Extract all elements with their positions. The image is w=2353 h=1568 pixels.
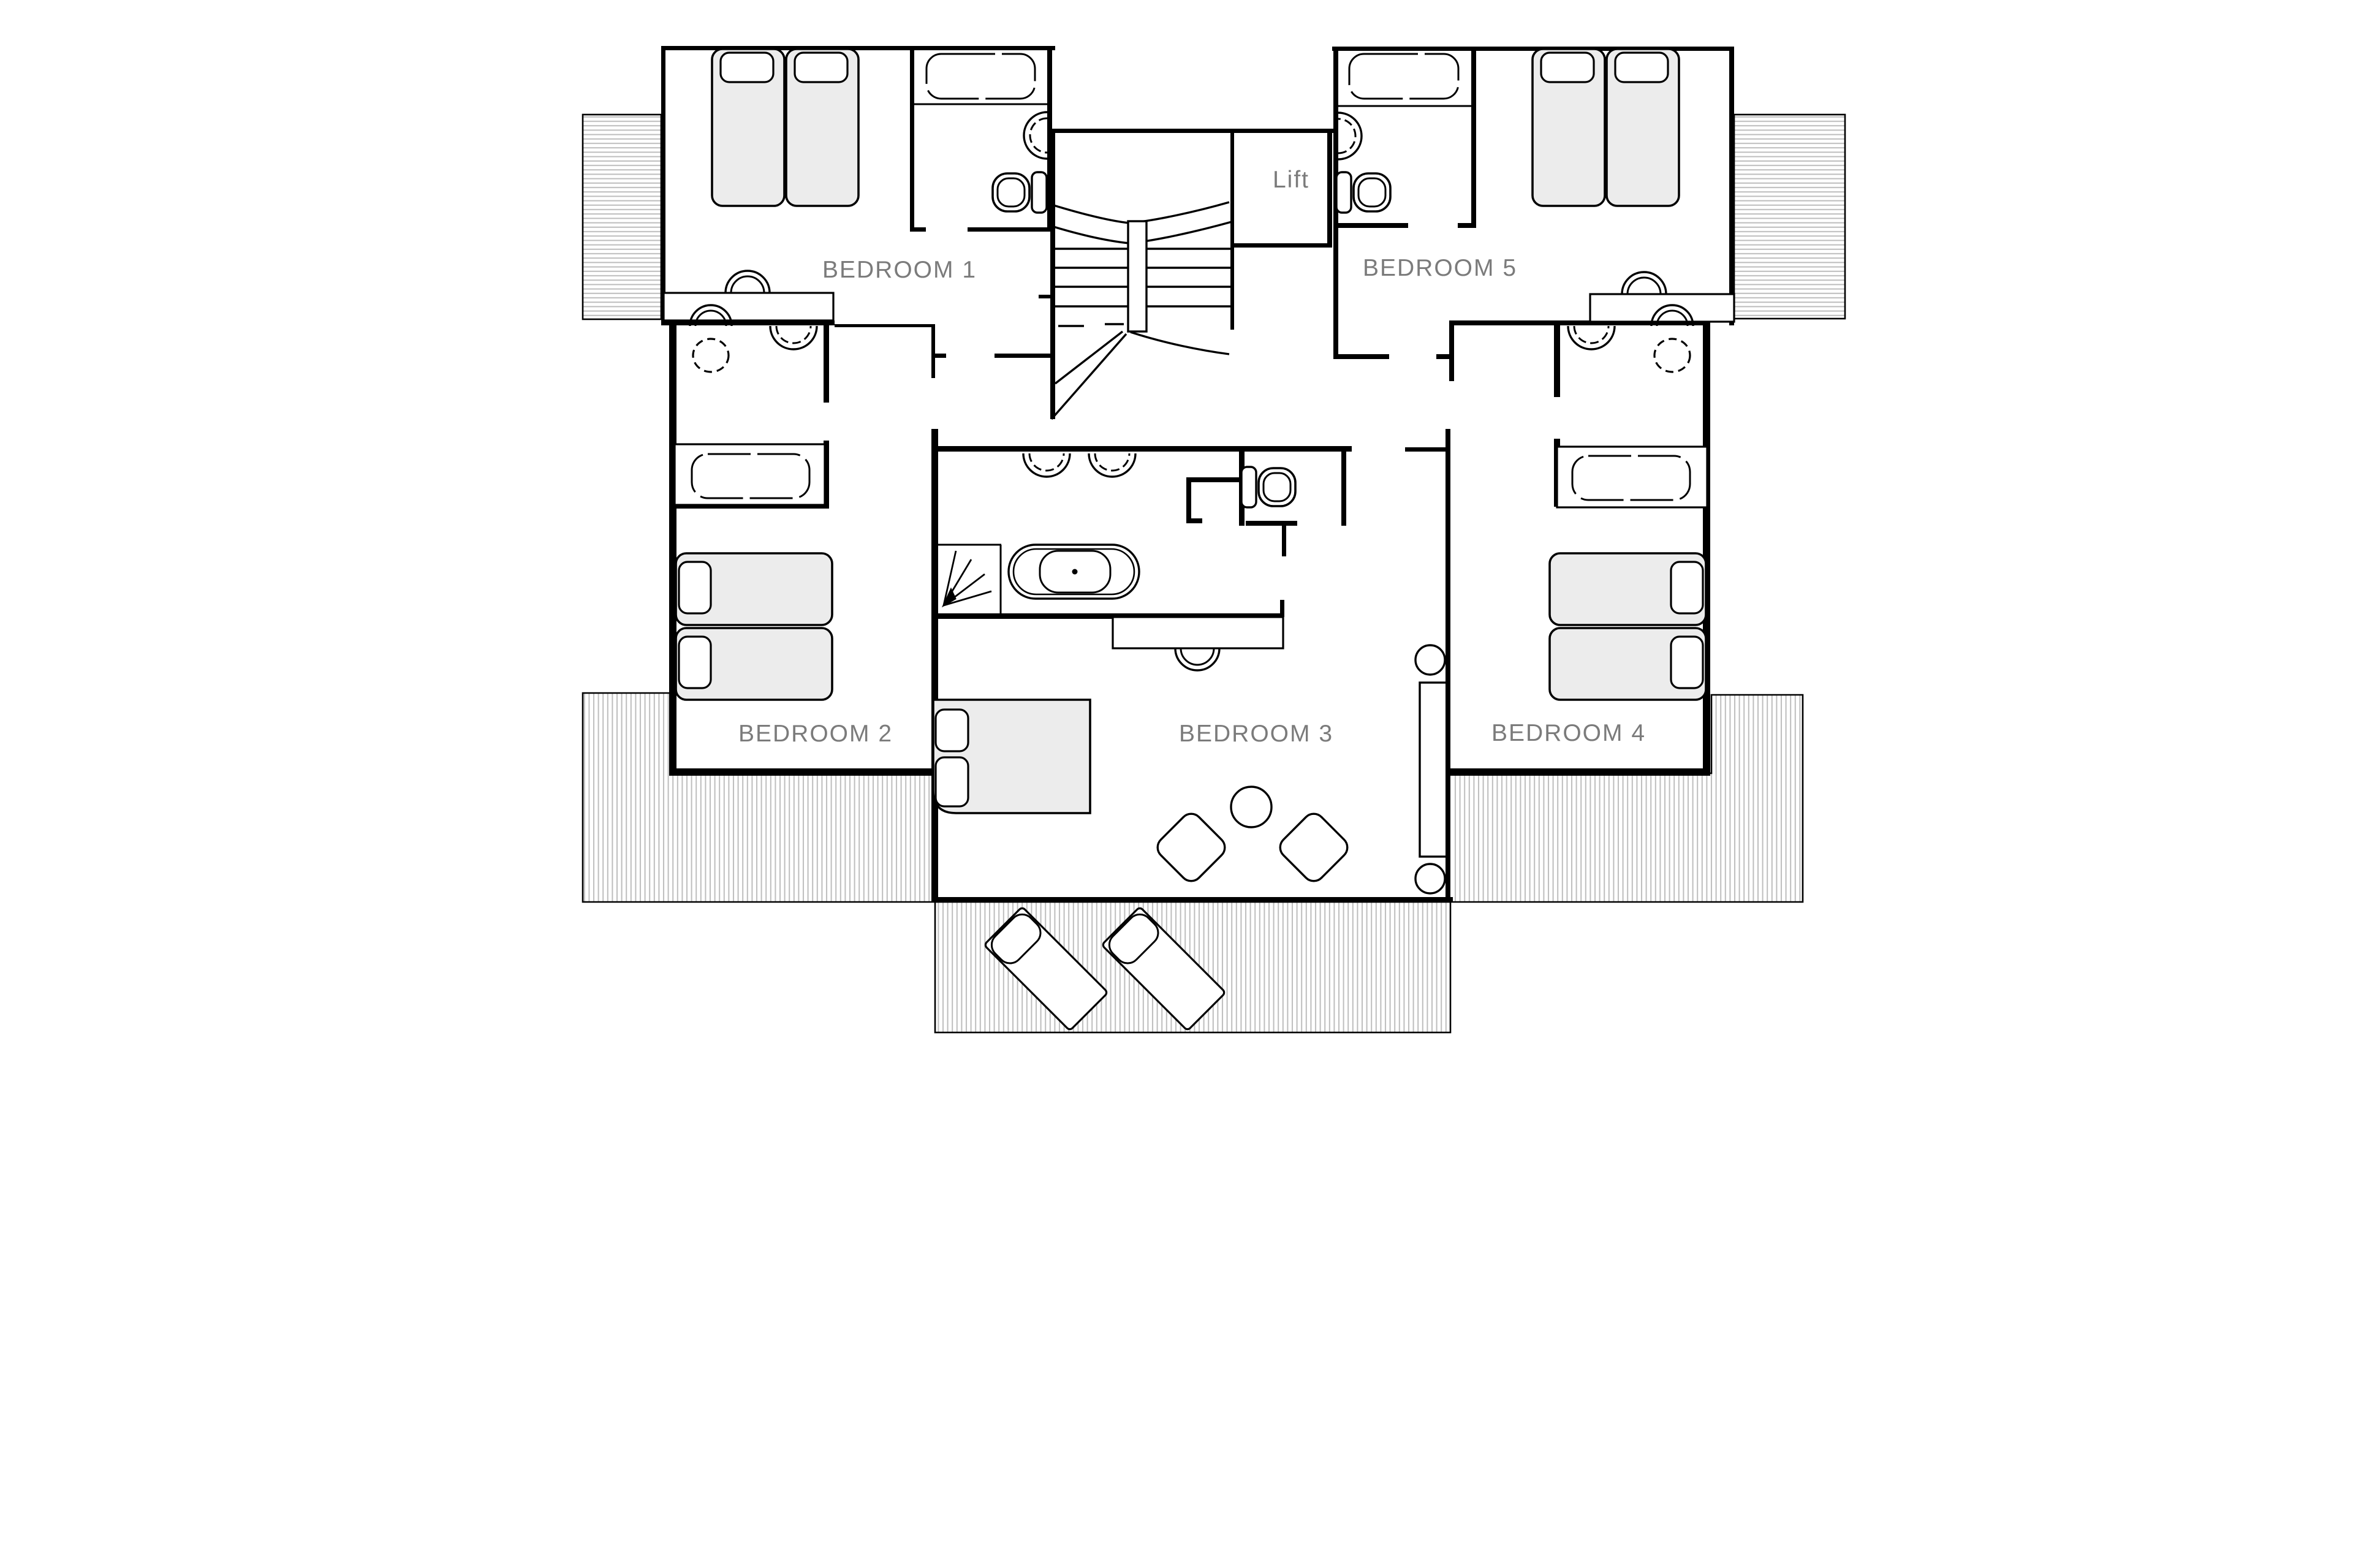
svg-text:BEDROOM 4: BEDROOM 4 xyxy=(1491,720,1646,746)
svg-text:BEDROOM 5: BEDROOM 5 xyxy=(1363,255,1517,281)
svg-text:BEDROOM 3: BEDROOM 3 xyxy=(1179,721,1333,747)
svg-text:BEDROOM 2: BEDROOM 2 xyxy=(738,721,893,747)
svg-text:Lift: Lift xyxy=(1273,167,1309,193)
svg-text:BEDROOM 1: BEDROOM 1 xyxy=(822,257,977,283)
